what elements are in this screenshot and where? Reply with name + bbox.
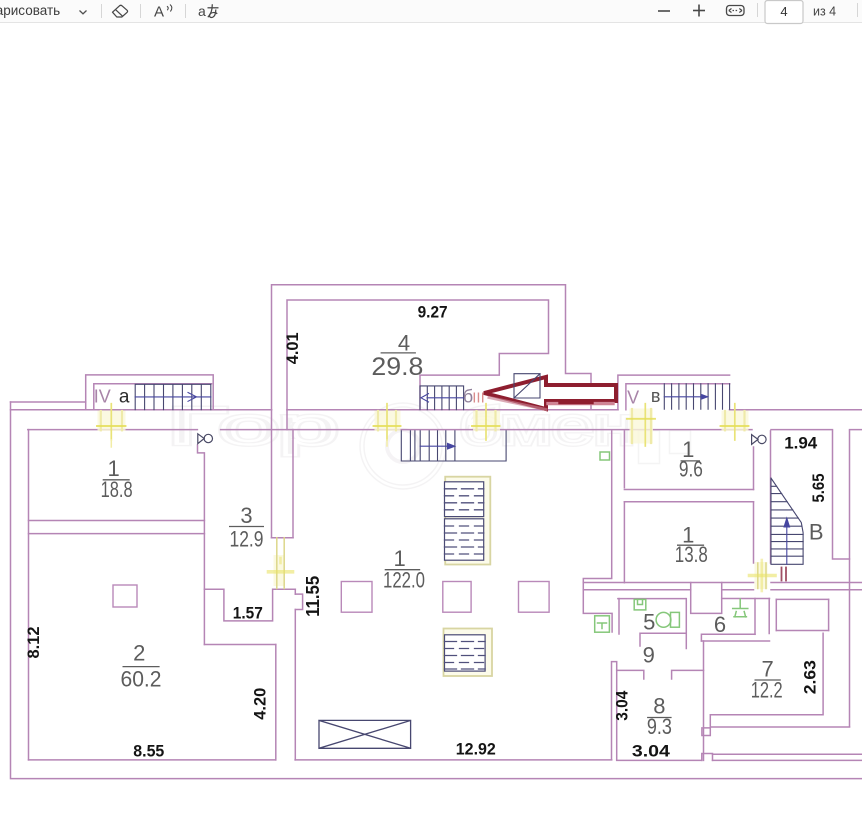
svg-text:A: A (154, 4, 164, 21)
svg-text:а: а (119, 387, 130, 408)
svg-text:9.3: 9.3 (647, 714, 672, 739)
svg-text:III: III (472, 390, 485, 407)
svg-text:5: 5 (643, 610, 655, 635)
svg-text:Гор: Гор (168, 398, 338, 456)
svg-text:12.92: 12.92 (456, 740, 496, 759)
svg-text:Нарисовать: Нарисовать (0, 3, 60, 18)
svg-text:V: V (627, 388, 639, 408)
svg-text:3: 3 (240, 503, 252, 528)
svg-text:4.01: 4.01 (283, 332, 302, 364)
svg-text:29.8: 29.8 (371, 353, 423, 381)
svg-text:из 4: из 4 (813, 5, 836, 19)
svg-text:9.27: 9.27 (418, 303, 448, 322)
svg-text:3.04: 3.04 (632, 742, 671, 761)
svg-text:2.63: 2.63 (801, 660, 820, 694)
svg-text:в: в (651, 386, 661, 406)
svg-text:122.0: 122.0 (383, 568, 425, 593)
svg-text:9.6: 9.6 (679, 457, 703, 482)
svg-text:3.04: 3.04 (613, 690, 632, 720)
svg-text:4: 4 (398, 331, 410, 356)
svg-text:IV: IV (94, 387, 111, 407)
svg-text:4.20: 4.20 (250, 688, 269, 720)
svg-text:2: 2 (133, 641, 145, 666)
svg-text:В: В (809, 520, 824, 545)
svg-text:12.9: 12.9 (230, 527, 264, 552)
svg-text:13.8: 13.8 (675, 542, 708, 567)
svg-text:12.2: 12.2 (751, 678, 783, 703)
svg-text:4: 4 (780, 4, 787, 19)
svg-text:8.55: 8.55 (133, 742, 164, 761)
svg-text:6: 6 (714, 612, 726, 637)
svg-text:8.12: 8.12 (24, 627, 43, 659)
svg-text:18.8: 18.8 (101, 477, 133, 502)
svg-text:1.57: 1.57 (233, 604, 263, 623)
svg-text:5.65: 5.65 (809, 474, 828, 503)
svg-text:9: 9 (643, 643, 655, 668)
svg-text:11.55: 11.55 (303, 576, 323, 617)
svg-text:60.2: 60.2 (121, 667, 162, 692)
svg-text:a: a (198, 3, 206, 19)
svg-text:1.94: 1.94 (784, 434, 818, 453)
